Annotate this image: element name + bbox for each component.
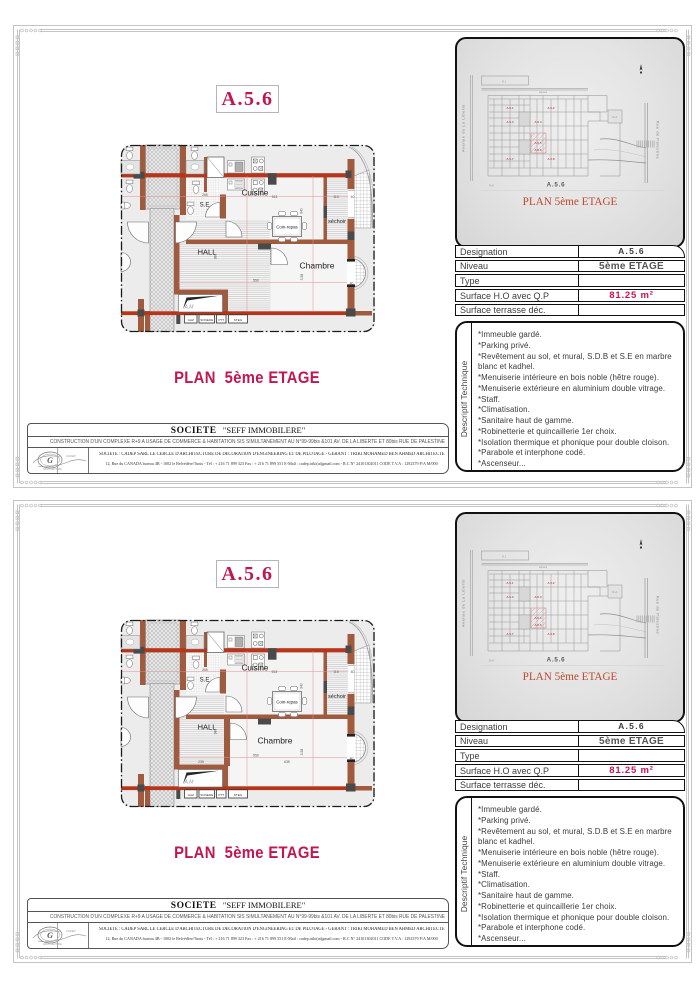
svg-text:R.1: R.1 — [502, 80, 507, 84]
svg-text:A.5.8: A.5.8 — [547, 632, 555, 636]
svg-text:S.E: S.E — [200, 203, 210, 209]
svg-text:CADEP: CADEP — [66, 929, 76, 933]
svg-text:265: 265 — [202, 668, 208, 672]
svg-text:ARCHITECTURE: ARCHITECTURE — [43, 468, 62, 471]
svg-text:A.5.5: A.5.5 — [534, 141, 542, 145]
svg-text:265: 265 — [202, 193, 208, 197]
svg-text:G: G — [47, 456, 53, 465]
svg-text:PTT: PTT — [218, 318, 224, 322]
svg-text:Cuisine: Cuisine — [242, 189, 269, 198]
svg-text:A.5.4: A.5.4 — [534, 595, 542, 599]
svg-text:A.5.3: A.5.3 — [506, 595, 514, 599]
svg-text:R+1: R+1 — [612, 115, 618, 119]
svg-text:550: 550 — [253, 279, 259, 283]
svg-text:A.5.8: A.5.8 — [547, 157, 555, 161]
svg-text:A.5.3: A.5.3 — [506, 120, 514, 124]
svg-text:A.5.6: A.5.6 — [547, 657, 566, 664]
svg-text:635: 635 — [284, 760, 290, 764]
svg-text:A.5.6: A.5.6 — [547, 182, 566, 189]
svg-text:Cuisine: Cuisine — [242, 664, 269, 673]
svg-text:110: 110 — [333, 195, 339, 199]
svg-text:110: 110 — [333, 670, 339, 674]
svg-text:CADEP: CADEP — [66, 454, 76, 458]
svg-text:Rue de Palestine: Rue de Palestine — [656, 596, 661, 635]
svg-text:40: 40 — [351, 195, 355, 199]
svg-text:A.5.6: A.5.6 — [534, 148, 542, 152]
svg-text:3.58: 3.58 — [300, 274, 304, 281]
svg-text:S.E: S.E — [200, 678, 210, 684]
svg-text:A.5.6: A.5.6 — [534, 623, 542, 627]
svg-text:Chambre: Chambre — [300, 261, 335, 271]
svg-text:Chambre: Chambre — [258, 736, 293, 746]
svg-text:GAZ: GAZ — [188, 318, 194, 322]
svg-text:40: 40 — [350, 757, 354, 761]
svg-text:PLAN 5ème ETAGE: PLAN 5ème ETAGE — [523, 671, 618, 683]
svg-text:380: 380 — [214, 254, 218, 260]
svg-text:340: 340 — [300, 683, 304, 689]
svg-text:513: 513 — [272, 195, 278, 199]
svg-text:A.5.7: A.5.7 — [506, 157, 514, 161]
svg-text:R+1: R+1 — [612, 590, 618, 594]
svg-text:340: 340 — [300, 208, 304, 214]
svg-text:A.5.2: A.5.2 — [547, 581, 555, 585]
svg-text:A.5.7: A.5.7 — [506, 632, 514, 636]
svg-text:R.1: R.1 — [502, 555, 507, 559]
svg-text:Avenue de La Liberté: Avenue de La Liberté — [461, 579, 466, 627]
svg-text:R+9: R+9 — [489, 184, 494, 188]
svg-text:SONEDE: SONEDE — [200, 793, 213, 797]
svg-text:A.M: A.M — [184, 305, 195, 311]
svg-text:PLAN 5ème ETAGE: PLAN 5ème ETAGE — [523, 196, 618, 208]
svg-text:550: 550 — [253, 754, 259, 758]
svg-text:ARCHITECTURE: ARCHITECTURE — [43, 943, 62, 946]
svg-text:espace: espace — [539, 91, 548, 94]
svg-text:Coin-repas: Coin-repas — [276, 700, 298, 705]
svg-text:séchoir: séchoir — [328, 694, 346, 700]
svg-text:A.5.5: A.5.5 — [534, 616, 542, 620]
svg-text:STEG: STEG — [234, 318, 243, 322]
svg-text:Rue de Palestine: Rue de Palestine — [656, 121, 661, 160]
svg-text:A.5.1: A.5.1 — [506, 106, 514, 110]
svg-text:A.M: A.M — [184, 780, 195, 786]
svg-text:R+9: R+9 — [489, 659, 494, 663]
svg-text:A.5.1: A.5.1 — [506, 581, 514, 585]
svg-text:G: G — [47, 931, 53, 940]
svg-text:235: 235 — [198, 760, 204, 764]
svg-text:PTT: PTT — [218, 793, 224, 797]
svg-text:380: 380 — [214, 729, 218, 735]
svg-text:Coin-repas: Coin-repas — [276, 225, 298, 230]
svg-text:40: 40 — [351, 670, 355, 674]
svg-text:A.5.4: A.5.4 — [534, 120, 542, 124]
svg-text:SONEDE: SONEDE — [200, 318, 213, 322]
svg-text:Avenue de La Liberté: Avenue de La Liberté — [461, 104, 466, 152]
svg-text:40: 40 — [350, 282, 354, 286]
svg-text:GAZ: GAZ — [188, 793, 194, 797]
svg-text:espace: espace — [539, 566, 548, 569]
svg-text:A.5.2: A.5.2 — [547, 106, 555, 110]
svg-text:513: 513 — [272, 670, 278, 674]
svg-text:3.58: 3.58 — [300, 749, 304, 756]
svg-text:STEG: STEG — [234, 793, 243, 797]
svg-text:séchoir: séchoir — [328, 219, 346, 225]
